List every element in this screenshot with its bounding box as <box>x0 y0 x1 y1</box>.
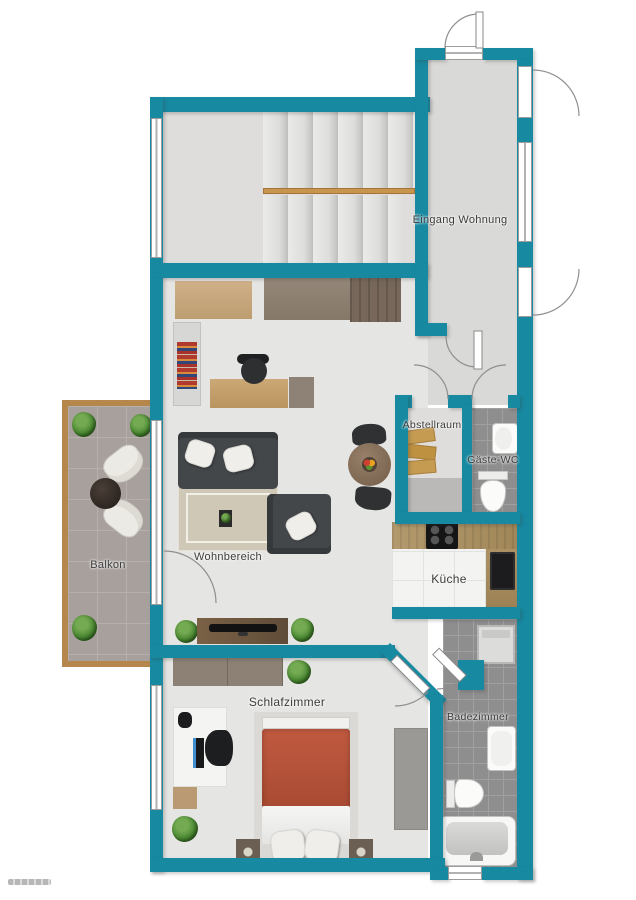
entrance-door-top <box>445 46 483 60</box>
wall-storage-top-right <box>508 395 520 408</box>
door-arc-entrance-top <box>445 14 479 48</box>
washing-machine-panel <box>482 630 510 638</box>
entrance-door-right-bottom <box>518 267 532 317</box>
bathroom-window <box>448 866 482 880</box>
bedroom-office-chair <box>205 730 233 766</box>
wall-kitchen-bottom <box>392 607 520 619</box>
room-label-kitchen: Küche <box>431 572 467 586</box>
wall-entrance-left <box>415 48 428 336</box>
wardrobe-dark-wood <box>350 278 401 322</box>
office-chair-seat <box>241 358 267 384</box>
wall-bath-bottom-left <box>430 867 448 880</box>
wall-bath-corner-post <box>458 660 484 690</box>
room-label-storage: Abstellraum <box>403 419 462 431</box>
stairs-upper-flight <box>263 112 415 189</box>
wall-bath-bottom-right <box>482 867 533 880</box>
bookshelf-books <box>177 342 197 389</box>
wall-entrance-top-right <box>483 48 533 60</box>
fruit-bowl <box>362 457 377 472</box>
wall-bath-left <box>430 695 443 867</box>
wall-storage-left <box>395 395 408 522</box>
stairs-lower-flight <box>263 195 403 263</box>
bedroom-window <box>151 685 162 810</box>
sideboard-gray <box>264 278 350 320</box>
entrance-door-right-top <box>518 66 532 118</box>
door-arc-entrance-right-bottom <box>533 269 579 315</box>
stove <box>426 521 458 549</box>
bed-duvet <box>262 729 350 811</box>
side-table <box>289 377 314 408</box>
entrance-window <box>518 142 532 242</box>
desk-stool <box>173 787 197 809</box>
tv <box>209 624 277 632</box>
sideboard-light-wood <box>175 281 252 319</box>
room-label-entrance: Eingang Wohnung <box>413 214 508 226</box>
watermark <box>8 879 51 885</box>
wall-bedroom-bottom <box>150 858 445 872</box>
tv-stand <box>238 632 248 636</box>
storage-mat <box>408 478 462 512</box>
balcony-coffee-table <box>90 478 121 509</box>
room-label-living: Wohnbereich <box>194 551 262 563</box>
wall-stair-top <box>150 97 430 112</box>
wc-toilet-tank <box>478 471 508 480</box>
wall-bedroom-top <box>150 645 395 658</box>
wc-sink-basin <box>495 427 512 450</box>
kitchen-sink <box>490 552 515 590</box>
door-leaf-entrance-top <box>476 12 483 48</box>
balcony-window-door <box>151 420 162 605</box>
bedroom-wardrobe <box>173 658 283 686</box>
bathtub-faucet <box>470 852 483 861</box>
bedroom-wardrobe-gray <box>394 728 428 830</box>
room-label-bedroom: Schlafzimmer <box>249 695 325 709</box>
wall-stair-bottom <box>150 263 428 278</box>
stair-handrail <box>263 188 415 194</box>
wall-kitchen-top <box>395 512 520 524</box>
desk-monitor <box>193 738 204 768</box>
storage-shelf-box-3 <box>405 459 436 476</box>
room-label-bathroom: Badezimmer <box>447 711 509 723</box>
door-arc-entrance-right-top <box>533 70 579 116</box>
stairwell-window <box>151 118 162 258</box>
room-floor-entrance <box>428 60 520 335</box>
bathtub-basin <box>446 822 508 855</box>
room-label-balcony: Balkon <box>90 559 125 571</box>
desk-speaker <box>178 712 192 728</box>
wall-hall-stub <box>415 323 447 336</box>
room-label-guest-wc: Gäste-WC <box>467 454 518 466</box>
bath-sink-basin <box>491 731 512 766</box>
bed-bench <box>262 717 350 729</box>
floor-plan: Eingang Wohnung Abstellraum Gäste-WC Woh… <box>0 0 636 900</box>
wall-entrance-top-left <box>415 48 445 60</box>
